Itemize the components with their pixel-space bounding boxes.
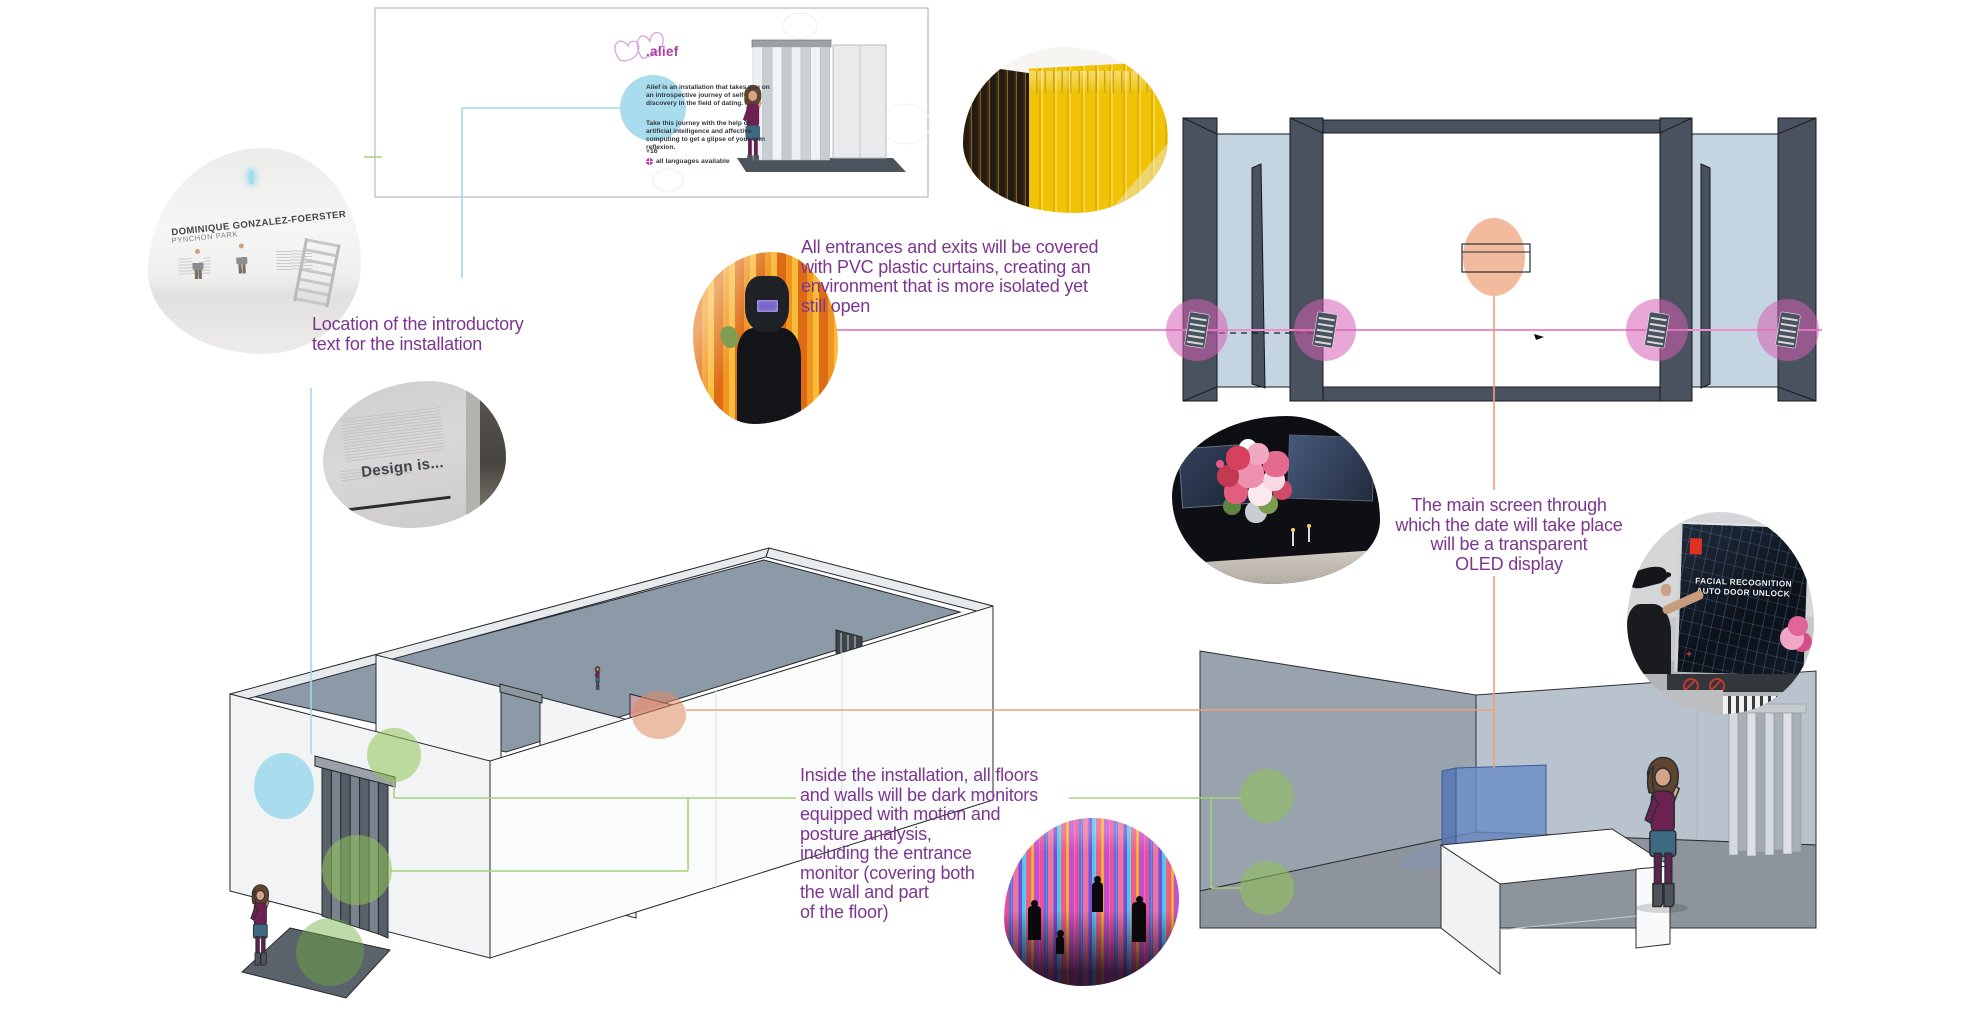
visitor-face	[1661, 584, 1671, 596]
annotation-pvc-curtains: All entrances and exits will be covered …	[801, 238, 1098, 316]
grille-strip	[1723, 696, 1807, 714]
intro-meta: +16 all languages available	[646, 147, 730, 166]
alief-logo: .alief	[646, 44, 679, 59]
orange-circle-iso	[632, 691, 686, 739]
green-circle-partition	[367, 728, 421, 782]
helmet-visor	[757, 300, 778, 312]
annotation-dark-monitors: Inside the installation, all floors and …	[800, 766, 1038, 922]
green-circle-door	[322, 835, 392, 905]
welder-body	[737, 328, 801, 424]
plus-icon: +	[1686, 649, 1692, 660]
intro-paragraph-1: Alief is an installation that takes you …	[646, 84, 770, 108]
expo-screen	[1287, 435, 1375, 502]
age-rating: +16	[646, 147, 730, 156]
expo-screen	[1178, 443, 1256, 508]
counter	[1627, 690, 1723, 714]
visitor-silhouette	[1092, 882, 1103, 912]
globe-icon	[646, 158, 653, 165]
presentation-board: DOMINIQUE GONZALEZ-FOERSTER PYNCHON PARK…	[0, 0, 1971, 1011]
cyan-wall-circle	[254, 753, 314, 819]
oled-flowers-photo	[1172, 416, 1380, 584]
expo-table	[1172, 548, 1380, 584]
annotation-oled-screen: The main screen through which the date w…	[1368, 496, 1650, 574]
annotation-intro-location: Location of the introductory text for th…	[312, 315, 524, 354]
green-circle-wall-upper	[1240, 769, 1294, 823]
visitor-silhouette	[1056, 936, 1064, 954]
ladder	[293, 238, 341, 308]
red-square	[1690, 538, 1703, 554]
worker-figure	[236, 248, 248, 264]
pink-flowers	[1788, 616, 1808, 636]
orange-circle-plan	[1463, 218, 1525, 296]
baseboard	[331, 496, 450, 514]
candlestick	[1292, 532, 1294, 546]
languages-row: all languages available	[646, 157, 730, 166]
neon-glyph-icon	[249, 170, 253, 184]
gallery-floor	[480, 381, 506, 528]
flower-bouquet	[1216, 460, 1224, 468]
candlestick	[1308, 528, 1310, 542]
visitor-silhouette	[1132, 902, 1146, 942]
worker-figure	[192, 254, 204, 270]
curtain-hooks	[1029, 71, 1168, 93]
green-circle-mat	[296, 918, 364, 986]
yellow-pvc-photo	[963, 47, 1168, 213]
visitor-shoulder	[1627, 604, 1671, 674]
languages-note: all languages available	[656, 157, 730, 166]
transparent-oled-photo: FACIAL RECOGNITION AUTO DOOR UNLOCK +	[1627, 512, 1814, 714]
welding-helmet-icon	[745, 276, 789, 332]
dark-strips	[963, 64, 1037, 213]
green-circle-wall-lower	[1240, 861, 1294, 915]
